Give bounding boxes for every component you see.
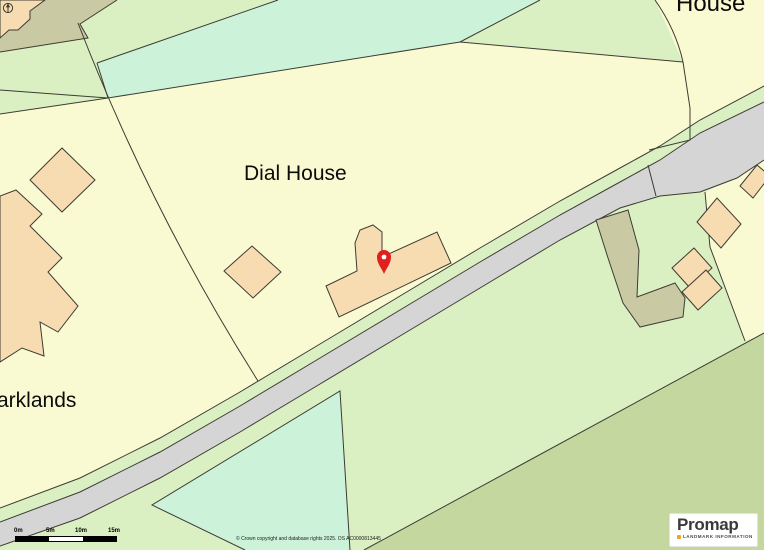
promap-brand-text: Promap — [677, 515, 757, 534]
scale-tick-0: 0m — [14, 528, 23, 534]
scale-tick-15: 15m — [108, 528, 120, 534]
scale-segment-3 — [83, 537, 116, 541]
promap-logo: Promap LANDMARK INFORMATION — [669, 513, 758, 547]
map-canvas[interactable] — [0, 0, 764, 550]
promap-tagline: LANDMARK INFORMATION — [677, 534, 757, 539]
scale-segment-2 — [49, 537, 82, 541]
scale-bar: 0m 5m 10m 15m — [14, 528, 124, 544]
scale-tick-10: 10m — [75, 528, 87, 534]
promap-tagline-text: LANDMARK INFORMATION — [683, 534, 753, 539]
scale-bar-segments — [15, 536, 117, 542]
copyright-notice: © Crown copyright and database rights 20… — [236, 536, 381, 542]
landmark-dot-icon — [677, 535, 681, 539]
scale-segment-1 — [16, 537, 49, 541]
map-viewport[interactable]: Dial House House arklands 0m 5m 10m 15m … — [0, 0, 764, 550]
scale-tick-5: 5m — [46, 528, 55, 534]
